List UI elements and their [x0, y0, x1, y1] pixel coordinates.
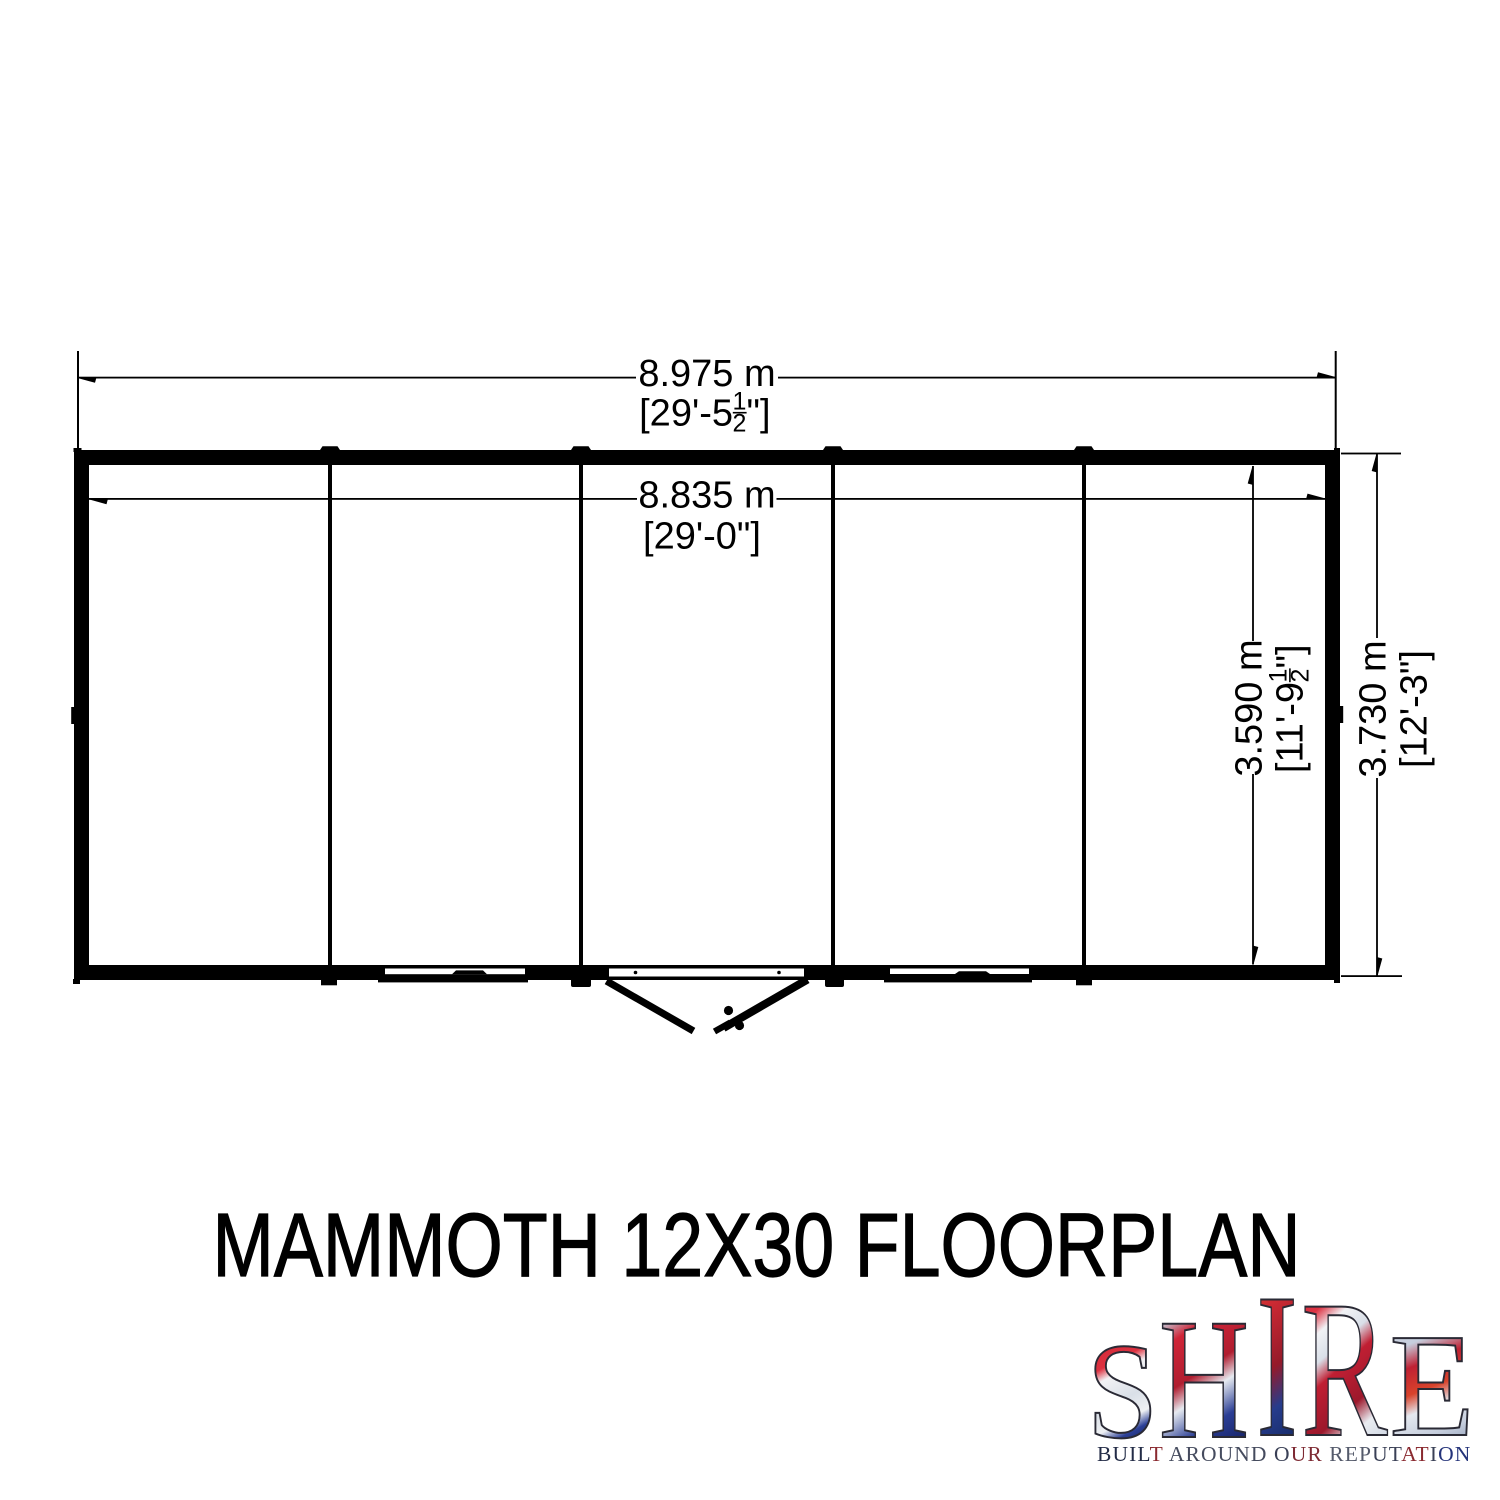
svg-text:[29'-5: [29'-5: [639, 393, 733, 435]
svg-text:[11'-9: [11'-9: [1270, 682, 1312, 773]
svg-text:3.730 m: 3.730 m: [1353, 640, 1395, 777]
svg-text:2: 2: [733, 410, 747, 438]
svg-text:BUILT AROUND OUR REPUTATION: BUILT AROUND OUR REPUTATION: [1097, 1442, 1471, 1466]
svg-text:8.835 m: 8.835 m: [638, 475, 775, 517]
svg-text:MAMMOTH 12X30 FLOORPLAN: MAMMOTH 12X30 FLOORPLAN: [213, 1196, 1301, 1296]
svg-text:2: 2: [1287, 669, 1315, 683]
svg-text:[29'-0"]: [29'-0"]: [643, 516, 761, 558]
svg-text:3.590 m: 3.590 m: [1229, 639, 1271, 776]
svg-text:[12'-3"]: [12'-3"]: [1394, 650, 1436, 768]
svg-text:"]: "]: [747, 393, 771, 435]
svg-text:8.975 m: 8.975 m: [638, 353, 775, 395]
svg-text:"]: "]: [1270, 644, 1312, 668]
